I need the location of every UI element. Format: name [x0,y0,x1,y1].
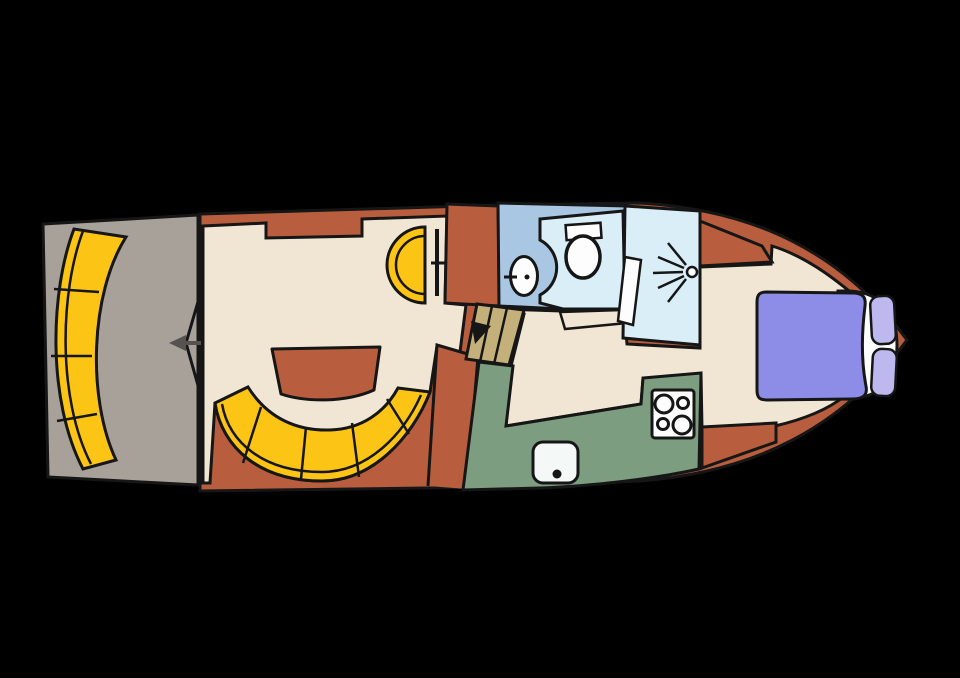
galley-sink-drain-icon [553,470,562,479]
bow-cabin [757,291,897,400]
bed-pillow [871,348,897,396]
salon-table [272,347,380,400]
shower [618,206,700,345]
helm-cabinet [445,204,500,306]
toilet-bowl [566,236,600,278]
bed-pillow [870,295,896,344]
washbasin-drain-icon [525,275,530,280]
boat-floor-plan [0,0,960,678]
bed-duvet [757,292,866,400]
floor-plan-canvas [0,0,960,678]
